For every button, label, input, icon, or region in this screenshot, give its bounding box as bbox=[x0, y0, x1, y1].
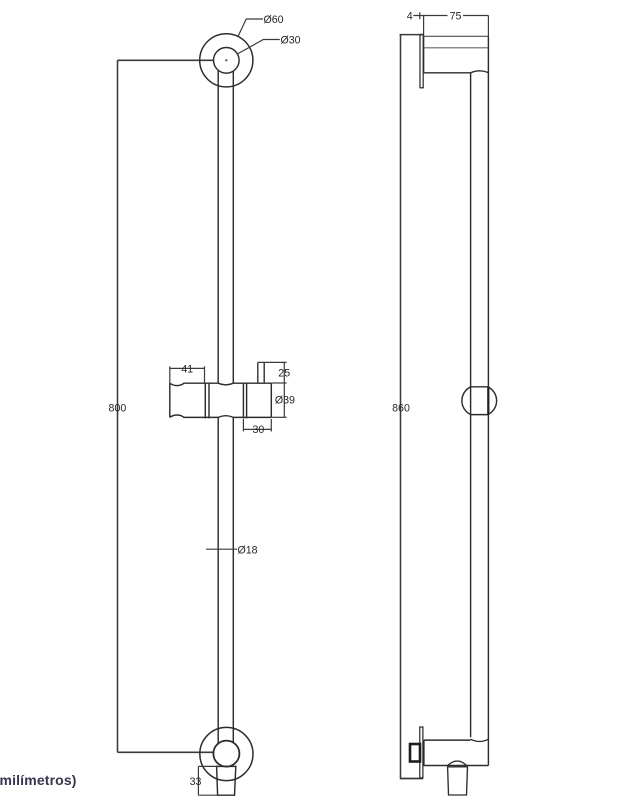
svg-text:Ø30: Ø30 bbox=[281, 34, 301, 46]
svg-text:860: 860 bbox=[392, 402, 410, 414]
svg-text:33: 33 bbox=[190, 776, 202, 788]
svg-text:30: 30 bbox=[253, 424, 265, 436]
svg-text:Ø60: Ø60 bbox=[264, 14, 284, 26]
svg-text:25: 25 bbox=[278, 368, 290, 380]
svg-text:800: 800 bbox=[109, 402, 127, 414]
svg-text:milímetros): milímetros) bbox=[0, 772, 77, 788]
svg-text:41: 41 bbox=[181, 363, 193, 375]
svg-text:Ø18: Ø18 bbox=[238, 544, 258, 556]
svg-text:75: 75 bbox=[450, 11, 462, 23]
svg-text:4: 4 bbox=[407, 11, 413, 23]
svg-text:Ø39: Ø39 bbox=[275, 394, 295, 406]
